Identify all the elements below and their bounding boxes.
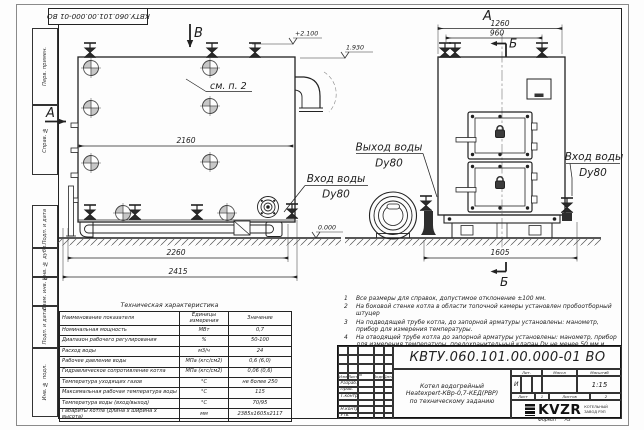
level-marks: [252, 38, 373, 238]
drawing-name: Котел водогрейный Heatexpert-КВр-0,7-КЕД…: [393, 369, 511, 419]
tech-row: Номинальная мощностьМВт0,7: [60, 326, 292, 336]
inlet-label-side: Вход воды: [307, 173, 366, 185]
drain-valve-icon: [191, 205, 203, 219]
doc-number: КВТУ.060.101.00.000-01 ВО: [393, 346, 622, 369]
col-izm: Изм: [338, 373, 348, 380]
tech-characteristics: Техническая характеристика Наименование …: [59, 302, 280, 422]
tech-row: Максимальная рабочая температура воды°С1…: [60, 388, 292, 398]
section-label-b-bottom: Б: [500, 275, 508, 289]
tech-row: Температура уходящих газов°Сне более 250: [60, 377, 292, 387]
section-label-b-top: Б: [509, 37, 517, 51]
tech-row: Габариты котла (длина х ширина х высота)…: [60, 409, 292, 421]
dim-1260: 1260: [490, 19, 509, 28]
format-note: Формат А3: [538, 418, 571, 423]
see-note-ref: см. п. 2: [210, 81, 247, 92]
handhole-icon: [81, 98, 101, 118]
title-block: Изм Лист N докум. Подп. Дата Разраб. Про…: [337, 345, 621, 418]
sig-utv: Утв.: [338, 413, 358, 420]
inlet-valve-icon: [286, 204, 298, 218]
handhole-icon: [200, 96, 220, 116]
inlet-valve-icon: [561, 198, 573, 212]
air-valve-icon: [439, 43, 451, 57]
air-valve-icon: [249, 43, 261, 57]
massa-value: [542, 376, 577, 393]
col-docnum: N докум.: [358, 373, 374, 380]
drain-valve-icon: [84, 205, 96, 219]
sheet-label: Лист: [511, 393, 535, 400]
door-handle: [456, 188, 476, 193]
inlet-label-front: Вход воды: [565, 151, 624, 163]
tech-row: Рабочее давление водыМПа (кгс/см2)0,6 (6…: [60, 357, 292, 367]
air-valve-icon: [206, 43, 218, 57]
tech-row: Диапазон рабочего регулирования%50-100: [60, 336, 292, 346]
col-podp: Подп.: [374, 373, 384, 380]
level-zero: 0.000: [318, 225, 336, 232]
scale-value: 1:15: [577, 376, 622, 393]
outlet-valve-icon: [420, 196, 432, 210]
tech-row: Расход водым3/ч24: [60, 346, 292, 356]
drawing-sheet: Перв. примен. Справ. № Подп. и дата Инв.…: [0, 0, 644, 430]
col-data: Дата: [384, 373, 393, 380]
level-top: +2.100: [295, 31, 318, 38]
air-valve-icon: [84, 43, 96, 57]
col-list: Лист: [348, 373, 358, 380]
masshtab-header: Масштаб: [577, 369, 622, 376]
padlock-icon: [496, 177, 505, 189]
kvzr-logo-text: KVZR: [538, 402, 581, 418]
dim-2260: 2260: [166, 248, 185, 257]
air-valve-icon: [449, 43, 461, 57]
tech-table-title: Техническая характеристика: [59, 302, 280, 309]
inlet-dn-front: Dy80: [579, 167, 607, 179]
side-ladder: [66, 123, 78, 236]
note-item: 3На подводящей трубе котла, до запорной …: [344, 320, 620, 334]
note-item: 2На боковой стенке котла в области топоч…: [344, 304, 620, 318]
tech-row: Гидравлическое сопротивление котлаМПа (к…: [60, 367, 292, 377]
level-mid: 1.930: [346, 45, 364, 52]
base-frame-side: [80, 221, 282, 237]
section-label-a-side: А: [45, 106, 55, 121]
inlet-flange: [258, 197, 279, 218]
sheets-label: Листов: [549, 393, 590, 400]
ash-door: [456, 162, 537, 212]
door-handle: [456, 138, 476, 143]
padlock-icon: [496, 126, 505, 138]
lit-header: Лит.: [511, 369, 542, 376]
handhole-icon: [81, 153, 101, 173]
kvzr-logo-icon: [525, 404, 535, 416]
tech-row: Температура воды (вход/выход)°С70/95: [60, 398, 292, 408]
outlet-dn: Dy80: [375, 158, 403, 170]
ground-hatch: [58, 239, 341, 246]
company-name: КОТЕЛЬНЫЙ ЗАВОД РЭП: [584, 405, 608, 413]
fire-door: [456, 112, 537, 159]
outlet-label: Выход воды: [356, 142, 423, 154]
sheets-value: 2: [590, 393, 622, 400]
dim-960: 960: [490, 29, 505, 38]
sheet-value: 1: [535, 393, 549, 400]
flue-elbow: [295, 72, 336, 112]
company-cell: KVZR КОТЕЛЬНЫЙ ЗАВОД РЭП: [511, 400, 622, 419]
massa-header: Масса: [542, 369, 577, 376]
handhole-icon: [200, 152, 220, 172]
outlet-elbow: [421, 211, 436, 235]
inlet-stub: [562, 213, 572, 221]
smoke-exhauster: [370, 192, 417, 239]
tech-table-header: Наименование показателя Единицы измерени…: [60, 312, 292, 326]
handhole-icon: [81, 58, 101, 78]
dim-2160: 2160: [176, 136, 195, 145]
note-item: 1Все размеры для справок, допустимое отк…: [344, 296, 620, 303]
handhole-icon: [200, 58, 220, 78]
inlet-dn-side: Dy80: [322, 189, 350, 201]
air-valve-icon: [536, 43, 548, 57]
ground-hatch: [345, 239, 601, 246]
dim-1605: 1605: [490, 248, 509, 257]
lit-value: И: [511, 376, 521, 393]
section-label-v: В: [194, 26, 203, 41]
tech-table: Наименование показателя Единицы измерени…: [59, 311, 292, 422]
dim-2415: 2415: [168, 267, 187, 276]
